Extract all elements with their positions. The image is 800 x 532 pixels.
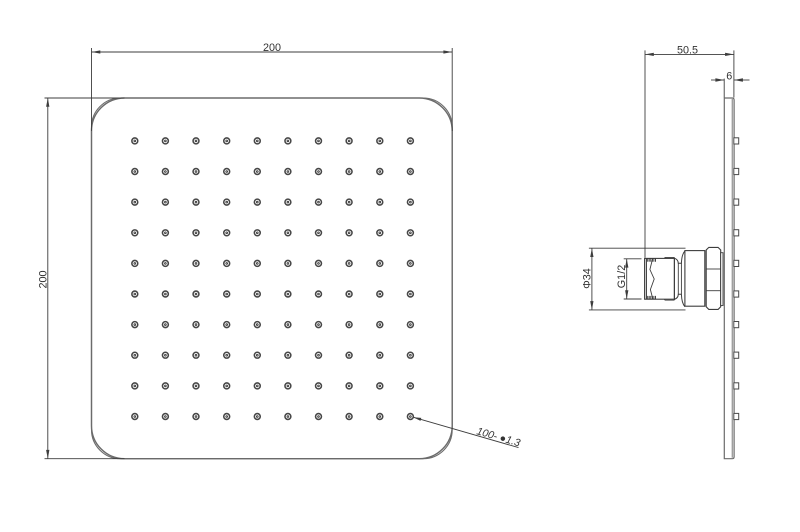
svg-text:G1/2: G1/2 xyxy=(616,265,628,288)
svg-text:200: 200 xyxy=(263,42,281,54)
svg-text:50.5: 50.5 xyxy=(677,45,698,57)
svg-text:200: 200 xyxy=(37,270,49,288)
svg-text:Φ34: Φ34 xyxy=(582,268,594,289)
svg-text:100- ●1.3: 100- ●1.3 xyxy=(475,425,522,449)
svg-text:6: 6 xyxy=(726,70,732,82)
